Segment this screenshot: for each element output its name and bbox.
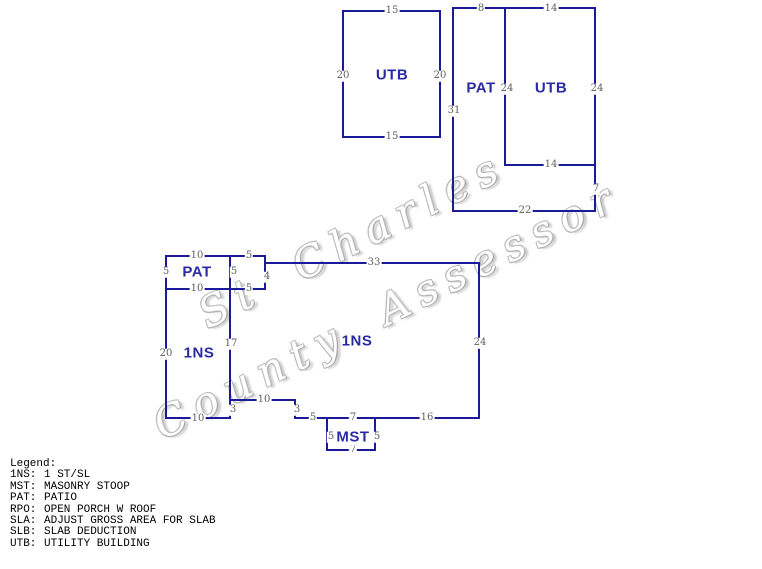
- dimension-label: 10: [191, 414, 206, 425]
- wall-segment: [594, 7, 596, 212]
- dimension-label: 17: [224, 339, 239, 350]
- legend-desc: UTILITY BUILDING: [44, 538, 150, 550]
- dimension-label: 5: [373, 432, 381, 443]
- dimension-label: 15: [385, 132, 400, 143]
- area-label-utb: UTB: [375, 67, 409, 84]
- area-label-mst: MST: [335, 429, 370, 446]
- legend-abbr: UTB:: [10, 539, 44, 550]
- property-sketch-canvas: St Charles County Assessor 15 20 20 15 U…: [0, 0, 762, 569]
- dimension-label: 20: [433, 71, 448, 82]
- legend-row: UTB:UTILITY BUILDING: [10, 539, 216, 550]
- dimension-label: 7: [592, 184, 600, 195]
- dimension-label: 31: [447, 106, 462, 117]
- area-label-1ns-left: 1NS: [183, 345, 216, 362]
- dimension-label: 15: [385, 6, 400, 17]
- wall-segment: [452, 7, 596, 9]
- dimension-label: 14: [544, 4, 559, 15]
- dimension-label: 22: [518, 206, 533, 217]
- dimension-label: 10: [257, 395, 272, 406]
- dimension-label: 5: [309, 413, 317, 424]
- legend-title: Legend:: [10, 459, 216, 470]
- area-label-pat: PAT: [181, 264, 212, 281]
- dimension-label: 24: [473, 338, 488, 349]
- dimension-label: 5: [230, 267, 238, 278]
- area-label-1ns-main: 1NS: [341, 333, 374, 350]
- dimension-label: 3: [229, 405, 237, 416]
- dimension-label: 4: [263, 272, 271, 283]
- legend-desc: PATIO: [44, 492, 77, 504]
- dimension-label: 8: [477, 4, 485, 15]
- dimension-label: 10: [190, 284, 205, 295]
- dimension-label: 3: [293, 405, 301, 416]
- legend: Legend: 1NS:1 ST/SL MST:MASONRY STOOP PA…: [10, 459, 216, 550]
- legend-desc: 1 ST/SL: [44, 469, 90, 481]
- legend-desc: MASONRY STOOP: [44, 481, 130, 493]
- legend-desc: ADJUST GROSS AREA FOR SLAB: [44, 515, 216, 527]
- dimension-label: 5: [245, 251, 253, 262]
- dimension-label: 20: [159, 349, 174, 360]
- dimension-label: 24: [500, 84, 515, 95]
- legend-desc: OPEN PORCH W ROOF: [44, 504, 156, 516]
- legend-desc: SLAB DEDUCTION: [44, 526, 136, 538]
- dimension-label: 7: [349, 445, 357, 456]
- dimension-label: 5: [162, 267, 170, 278]
- legend-row: MST:MASONRY STOOP: [10, 482, 216, 493]
- dimension-label: 5: [245, 284, 253, 295]
- dimension-label: 5: [327, 432, 335, 443]
- dimension-label: 24: [590, 84, 605, 95]
- legend-abbr: PAT:: [10, 493, 44, 504]
- dimension-label: 14: [544, 160, 559, 171]
- dimension-label: 33: [367, 258, 382, 269]
- dimension-label: 16: [420, 413, 435, 424]
- dimension-label: 7: [349, 413, 357, 424]
- area-label-pat: PAT: [465, 80, 496, 97]
- dimension-label: 20: [336, 71, 351, 82]
- area-label-utb: UTB: [534, 80, 568, 97]
- dimension-label: 10: [190, 251, 205, 262]
